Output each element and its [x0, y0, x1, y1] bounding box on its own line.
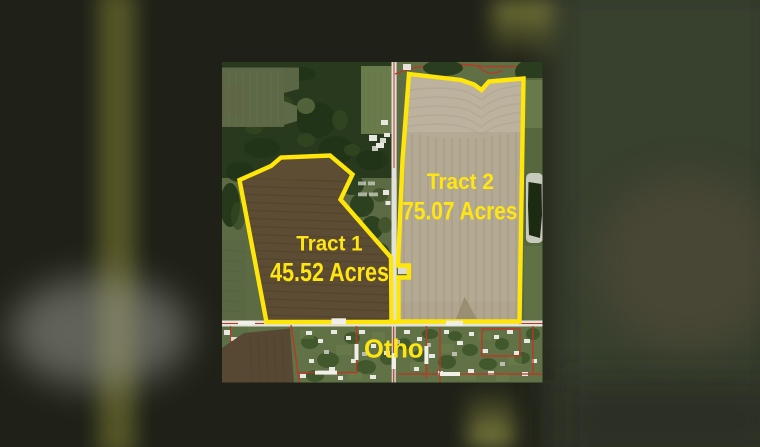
svg-text:Tract 2: Tract 2 [427, 169, 494, 194]
svg-text:Tract 1: Tract 1 [296, 232, 362, 256]
svg-text:75.07 Acres: 75.07 Acres [402, 197, 517, 225]
svg-text:45.52 Acres: 45.52 Acres [270, 259, 389, 287]
svg-text:Otho: Otho [364, 335, 424, 363]
